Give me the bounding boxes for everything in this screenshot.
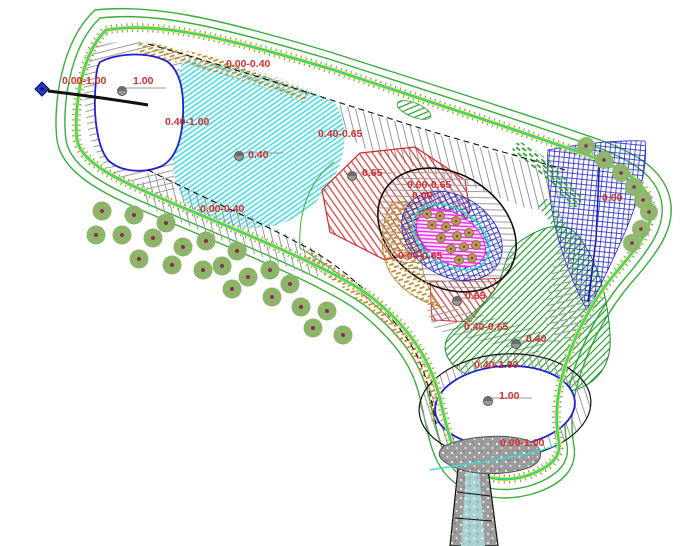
depth-label: 0.40 <box>248 149 269 161</box>
depth-label: 0.65 <box>362 167 383 179</box>
island-plant-center <box>431 224 433 226</box>
depth-label: 0.00-0.65 <box>398 250 443 262</box>
tree-center <box>100 209 104 213</box>
tree-center <box>341 333 345 337</box>
depth-label: 0.40-0.65 <box>318 128 363 140</box>
tree-center <box>325 309 329 313</box>
depth-label: 0.40 <box>526 333 547 345</box>
tree-center <box>230 287 234 291</box>
tree-center <box>647 210 651 214</box>
island-plant-center <box>455 220 457 222</box>
depth-label: 0.00-1.00 <box>500 437 545 449</box>
tree-center <box>639 227 643 231</box>
depth-label: 0.00-0.40 <box>200 203 245 215</box>
tree-center <box>220 264 224 268</box>
island-plant-center <box>426 213 428 215</box>
tree-center <box>204 239 208 243</box>
cad-canvas[interactable]: 0.00-1.001.000.40-1.000.00-0.400.400.40-… <box>0 0 693 546</box>
depth-label: 0.00-1.00 <box>62 75 107 87</box>
tree-center <box>299 305 303 309</box>
tree-center <box>270 295 274 299</box>
island-plant-center <box>440 237 442 239</box>
tree-center <box>641 198 645 202</box>
depth-label: 1.00 <box>133 75 154 87</box>
depth-label: 0.40-1.00 <box>474 359 519 371</box>
tree-center <box>268 268 272 272</box>
tree-center <box>181 245 185 249</box>
depth-label: 0.40-0.65 <box>464 321 509 333</box>
tree-center <box>235 249 239 253</box>
left-pool <box>95 55 183 171</box>
plan-svg: 0.00-1.001.000.40-1.000.00-0.400.400.40-… <box>0 0 693 546</box>
depth-label: 0.00 <box>602 192 623 204</box>
depth-label: 0.40-1.00 <box>165 116 210 128</box>
island-plant-center <box>471 257 473 259</box>
tree-center <box>246 275 250 279</box>
tree-center <box>132 213 136 217</box>
island-plant-center <box>445 226 447 228</box>
tree-center <box>288 282 292 286</box>
tree-center <box>201 268 205 272</box>
tree-center <box>619 171 623 175</box>
island-plant-center <box>450 248 452 250</box>
island-plant-center <box>439 215 441 217</box>
island-plant-center <box>458 259 460 261</box>
tree-center <box>602 158 606 162</box>
depth-label: 1.00 <box>499 390 520 402</box>
tree-center <box>151 236 155 240</box>
tree-center <box>94 233 98 237</box>
tree-center <box>632 185 636 189</box>
island-plant-center <box>475 244 477 246</box>
tree-center <box>311 326 315 330</box>
island-plant-center <box>456 235 458 237</box>
outlet-works <box>430 436 554 546</box>
tree-center <box>170 263 174 267</box>
depth-label: 0.65 <box>465 290 486 302</box>
tree-center <box>584 144 588 148</box>
depth-label: 0.00 <box>412 190 433 202</box>
island-plant-center <box>468 232 470 234</box>
tree-center <box>630 241 634 245</box>
tree-center <box>137 257 141 261</box>
depth-label: 0.00-0.40 <box>226 58 271 70</box>
tree-center <box>120 233 124 237</box>
benchmark-center <box>40 87 43 90</box>
tree-center <box>164 221 168 225</box>
island-plant-center <box>463 246 465 248</box>
